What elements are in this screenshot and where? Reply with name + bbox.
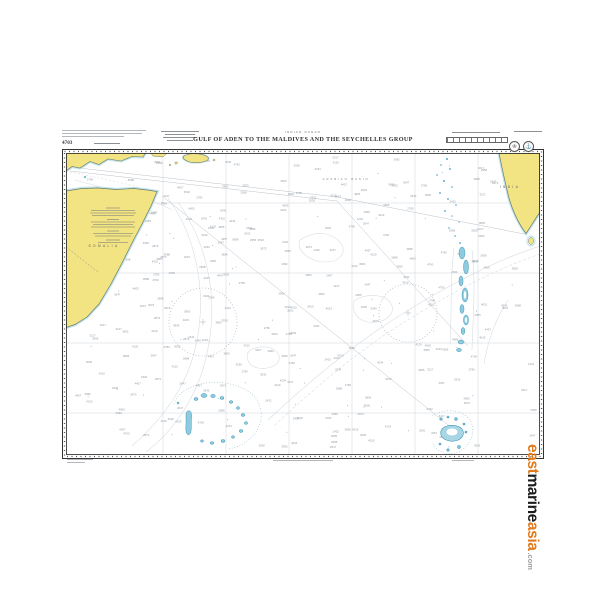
svg-text:2873: 2873 (220, 384, 227, 388)
svg-text:4015: 4015 (183, 318, 190, 322)
atolls-maldives (457, 247, 469, 352)
svg-text:3530: 3530 (419, 429, 426, 433)
corner-microtext (452, 460, 474, 461)
crown-icon: ♔ (509, 141, 520, 152)
svg-text:4457: 4457 (485, 327, 492, 331)
svg-text:4605: 4605 (425, 343, 432, 347)
svg-text:2647: 2647 (290, 353, 297, 357)
print-microtext (273, 460, 333, 461)
svg-text:2958: 2958 (530, 408, 537, 412)
arabian-basin-label: ARABIAN BASIN (300, 177, 392, 181)
svg-text:2958: 2958 (449, 229, 456, 233)
svg-text:2432: 2432 (427, 407, 434, 411)
svg-text:2432: 2432 (333, 430, 340, 434)
publication-microtext (67, 462, 85, 463)
svg-text:4605: 4605 (383, 203, 390, 207)
svg-text:4120: 4120 (186, 217, 193, 221)
svg-text:3688: 3688 (164, 253, 171, 257)
svg-text:4457: 4457 (208, 354, 215, 358)
svg-text:2432: 2432 (225, 306, 232, 310)
svg-text:4310: 4310 (402, 280, 409, 284)
svg-text:3688: 3688 (388, 183, 395, 187)
series-microtext (514, 131, 542, 132)
svg-text:3955: 3955 (345, 427, 352, 431)
series-region-label: INDIAN OCEAN (263, 130, 343, 134)
svg-text:2873: 2873 (242, 184, 249, 188)
svg-text:3217: 3217 (479, 193, 486, 197)
svg-text:3805: 3805 (122, 330, 129, 334)
svg-text:3217: 3217 (287, 380, 294, 384)
svg-text:3092: 3092 (282, 262, 289, 266)
svg-text:3955: 3955 (475, 313, 482, 317)
svg-text:4015: 4015 (368, 439, 375, 443)
svg-text:3340: 3340 (195, 339, 202, 343)
svg-text:2958: 2958 (218, 408, 225, 412)
svg-text:3340: 3340 (410, 194, 417, 198)
svg-text:2873: 2873 (306, 245, 313, 249)
svg-text:2873: 2873 (373, 319, 380, 323)
svg-text:3955: 3955 (423, 348, 430, 352)
svg-text:4605: 4605 (169, 271, 176, 275)
compass-rose-centers (200, 310, 411, 325)
svg-text:3960: 3960 (305, 273, 312, 277)
svg-text:3955: 3955 (92, 337, 99, 341)
svg-text:4015: 4015 (148, 303, 155, 307)
svg-text:4120: 4120 (357, 217, 364, 221)
svg-text:2873: 2873 (143, 433, 150, 437)
svg-text:2647: 2647 (326, 274, 333, 278)
svg-text:2780: 2780 (242, 369, 249, 373)
svg-text:2647: 2647 (529, 433, 536, 437)
svg-text:4234: 4234 (335, 368, 342, 372)
svg-text:4310: 4310 (334, 356, 341, 360)
svg-text:4790: 4790 (123, 431, 130, 435)
atolls-seychelles (174, 382, 261, 449)
svg-text:4457: 4457 (135, 381, 142, 385)
svg-text:2958: 2958 (240, 191, 247, 195)
svg-text:2432: 2432 (324, 358, 331, 362)
svg-text:3955: 3955 (418, 368, 425, 372)
svg-text:3955: 3955 (173, 324, 180, 328)
svg-text:4234: 4234 (280, 378, 287, 382)
svg-text:4120: 4120 (415, 343, 422, 347)
svg-text:2432: 2432 (314, 248, 321, 252)
svg-text:3217: 3217 (427, 367, 434, 371)
svg-text:4605: 4605 (331, 434, 338, 438)
svg-text:3955: 3955 (396, 265, 403, 269)
svg-text:2647: 2647 (403, 181, 410, 185)
svg-text:4015: 4015 (361, 188, 368, 192)
svg-text:3530: 3530 (221, 319, 228, 323)
svg-text:3530: 3530 (184, 190, 191, 194)
svg-text:4234: 4234 (501, 304, 508, 308)
svg-text:4605: 4605 (119, 407, 126, 411)
svg-text:3217: 3217 (116, 327, 123, 331)
svg-text:4015: 4015 (472, 259, 479, 263)
watermark-word-east: east (524, 444, 541, 473)
svg-text:4120: 4120 (151, 329, 158, 333)
svg-text:3092: 3092 (478, 234, 485, 238)
svg-text:4234: 4234 (314, 167, 321, 171)
svg-text:3092: 3092 (287, 308, 294, 312)
svg-text:2958: 2958 (480, 254, 487, 258)
svg-text:3340: 3340 (297, 416, 304, 420)
svg-text:3955: 3955 (281, 354, 288, 358)
svg-text:4790: 4790 (451, 270, 458, 274)
svg-text:2780: 2780 (153, 272, 160, 276)
svg-text:2780: 2780 (164, 345, 171, 349)
svg-text:4234: 4234 (202, 338, 209, 342)
watermark-word-marine: marine (524, 473, 541, 521)
svg-text:4310: 4310 (99, 372, 106, 376)
svg-text:4457: 4457 (177, 185, 184, 189)
land-india (499, 153, 540, 246)
svg-text:2432: 2432 (450, 199, 457, 203)
svg-text:4234: 4234 (436, 347, 443, 351)
svg-text:4234: 4234 (385, 425, 392, 429)
svg-text:4457: 4457 (438, 381, 445, 385)
svg-text:4605: 4605 (484, 265, 491, 269)
anchor-icon: ⚓ (523, 141, 534, 152)
svg-text:4310: 4310 (172, 365, 179, 369)
svg-text:4790: 4790 (152, 278, 159, 282)
svg-text:3092: 3092 (174, 345, 181, 349)
svg-text:4310: 4310 (219, 217, 226, 221)
svg-text:4120: 4120 (132, 345, 139, 349)
svg-text:3092: 3092 (294, 163, 301, 167)
svg-text:3805: 3805 (223, 352, 230, 356)
svg-text:2780: 2780 (345, 383, 352, 387)
svg-text:4457: 4457 (341, 182, 348, 186)
svg-text:2780: 2780 (239, 281, 246, 285)
svg-text:3092: 3092 (474, 444, 481, 448)
svg-text:3805: 3805 (512, 267, 519, 271)
svg-text:4790: 4790 (471, 354, 478, 358)
copyright-microtext-line (62, 130, 146, 131)
chart-title: GULF OF ADEN TO THE MALDIVES AND THE SEY… (178, 136, 428, 143)
svg-text:3530: 3530 (258, 238, 265, 242)
svg-text:4790: 4790 (234, 163, 241, 167)
svg-text:3960: 3960 (184, 309, 191, 313)
svg-text:3805: 3805 (425, 193, 432, 197)
svg-text:4790: 4790 (349, 225, 356, 229)
svg-text:3530: 3530 (307, 304, 314, 308)
svg-text:4015: 4015 (479, 335, 486, 339)
svg-text:2958: 2958 (355, 293, 362, 297)
svg-text:4605: 4605 (132, 286, 139, 290)
svg-text:2432: 2432 (265, 398, 272, 402)
svg-text:3805: 3805 (123, 354, 130, 358)
svg-text:2780: 2780 (289, 361, 296, 365)
latitude-scale-microtext (452, 132, 500, 133)
svg-text:4234: 4234 (280, 208, 287, 212)
land-socotra (169, 154, 215, 166)
nautical-chart-graphic: 4234396028734457334040153688243247903217… (0, 0, 600, 600)
svg-text:4234: 4234 (226, 424, 233, 428)
svg-text:4605: 4605 (360, 433, 367, 437)
svg-text:2958: 2958 (331, 440, 338, 444)
svg-text:2873: 2873 (155, 377, 162, 381)
india-label: INDIA (492, 185, 528, 189)
svg-text:3960: 3960 (161, 201, 168, 205)
svg-text:3217: 3217 (100, 323, 107, 327)
svg-text:4015: 4015 (326, 307, 333, 311)
watermark-word-asia: asia (524, 522, 541, 551)
svg-text:4015: 4015 (352, 427, 359, 431)
svg-text:4790: 4790 (383, 233, 390, 237)
svg-text:2780: 2780 (421, 183, 428, 187)
svg-text:3530: 3530 (349, 346, 356, 350)
svg-text:4015: 4015 (184, 255, 191, 259)
svg-text:4605: 4605 (354, 192, 361, 196)
svg-text:2873: 2873 (260, 247, 267, 251)
svg-text:3805: 3805 (156, 257, 163, 261)
svg-text:3960: 3960 (143, 241, 150, 245)
scale-microtext (94, 143, 120, 144)
svg-text:4310: 4310 (378, 213, 385, 217)
svg-text:3217: 3217 (330, 248, 337, 252)
svg-text:4120: 4120 (333, 161, 340, 165)
svg-text:2958: 2958 (156, 161, 163, 165)
svg-text:3340: 3340 (208, 226, 215, 230)
svg-text:4015: 4015 (175, 419, 182, 423)
svg-text:2647: 2647 (218, 240, 225, 244)
svg-text:3805: 3805 (365, 396, 372, 400)
svg-text:3805: 3805 (479, 221, 486, 225)
svg-text:3955: 3955 (471, 228, 478, 232)
svg-text:4310: 4310 (244, 343, 251, 347)
svg-text:4120: 4120 (330, 194, 337, 198)
svg-text:3530: 3530 (454, 378, 461, 382)
eastmarineasia-watermark: eastmarineasia.com (525, 444, 541, 570)
svg-text:3688: 3688 (221, 252, 228, 256)
svg-text:2780: 2780 (407, 206, 414, 210)
svg-text:3340: 3340 (370, 306, 377, 310)
somalia-label: SOMALIA (82, 244, 126, 248)
edition-microtext-line (161, 131, 199, 132)
svg-text:3340: 3340 (112, 386, 119, 390)
svg-text:4015: 4015 (481, 303, 488, 307)
svg-text:3092: 3092 (168, 417, 175, 421)
svg-text:3530: 3530 (280, 179, 287, 183)
svg-text:4457: 4457 (75, 393, 82, 397)
svg-text:4234: 4234 (377, 361, 384, 365)
svg-text:3960: 3960 (222, 185, 229, 189)
svg-text:3340: 3340 (220, 208, 227, 212)
chart-number: 4703 (62, 140, 72, 146)
svg-text:2647: 2647 (151, 354, 158, 358)
svg-text:3217: 3217 (439, 414, 446, 418)
svg-text:4120: 4120 (160, 419, 167, 423)
svg-text:4457: 4457 (365, 249, 372, 253)
svg-text:4015: 4015 (385, 377, 392, 381)
svg-text:3688: 3688 (515, 303, 522, 307)
svg-text:3688: 3688 (473, 177, 480, 181)
svg-text:2958: 2958 (364, 210, 371, 214)
svg-text:4120: 4120 (528, 362, 535, 366)
svg-text:2873: 2873 (464, 401, 471, 405)
svg-text:4015: 4015 (204, 276, 211, 280)
svg-text:2647: 2647 (364, 282, 371, 286)
map-interior: 4234396028734457334040153688243247903217… (66, 152, 540, 455)
svg-text:4457: 4457 (255, 348, 262, 352)
svg-text:2432: 2432 (244, 231, 251, 235)
svg-text:3092: 3092 (345, 198, 352, 202)
svg-text:2873: 2873 (130, 392, 137, 396)
svg-text:4605: 4605 (218, 225, 225, 229)
svg-text:2958: 2958 (481, 168, 488, 172)
svg-text:3340: 3340 (325, 226, 332, 230)
svg-text:2780: 2780 (87, 178, 94, 182)
svg-text:3688: 3688 (183, 356, 190, 360)
svg-text:4457: 4457 (431, 431, 438, 435)
svg-text:3340: 3340 (225, 160, 232, 164)
svg-text:3955: 3955 (285, 249, 292, 253)
svg-text:2780: 2780 (264, 326, 271, 330)
svg-text:4120: 4120 (370, 252, 377, 256)
svg-text:3955: 3955 (281, 444, 288, 448)
svg-text:3092: 3092 (393, 157, 400, 161)
copyright-microtext-line (62, 133, 142, 134)
svg-text:3092: 3092 (259, 443, 266, 447)
svg-text:3955: 3955 (250, 238, 257, 242)
svg-text:3217: 3217 (477, 227, 484, 231)
graphic-scale-bar (446, 137, 508, 143)
svg-text:4120: 4120 (296, 191, 303, 195)
svg-text:4015: 4015 (164, 306, 171, 310)
product-image-canvas: 4234396028734457334040153688243247903217… (0, 0, 600, 600)
land-arabia (66, 152, 168, 178)
svg-text:3340: 3340 (203, 388, 210, 392)
svg-text:3955: 3955 (84, 392, 91, 396)
svg-text:2647: 2647 (140, 304, 147, 308)
svg-text:2432: 2432 (201, 217, 208, 221)
svg-text:3217: 3217 (333, 284, 340, 288)
svg-text:4120: 4120 (351, 264, 358, 268)
svg-text:4234: 4234 (229, 219, 236, 223)
svg-text:4605: 4605 (361, 305, 368, 309)
svg-text:2873: 2873 (154, 316, 161, 320)
svg-text:3688: 3688 (232, 238, 239, 242)
svg-text:4310: 4310 (428, 302, 435, 306)
svg-text:4234: 4234 (403, 275, 410, 279)
publication-microtext (67, 459, 93, 460)
svg-text:3688: 3688 (157, 296, 164, 300)
crown-glyph: ♔ (512, 144, 517, 150)
svg-text:3340: 3340 (203, 294, 210, 298)
svg-text:3530: 3530 (309, 199, 316, 203)
anchor-glyph: ⚓ (525, 144, 532, 150)
svg-text:4234: 4234 (291, 441, 298, 445)
svg-text:2647: 2647 (114, 293, 121, 297)
svg-text:3688: 3688 (391, 256, 398, 260)
svg-text:3688: 3688 (406, 247, 413, 251)
svg-text:3530: 3530 (223, 272, 230, 276)
svg-text:2780: 2780 (468, 367, 475, 371)
svg-text:3960: 3960 (278, 291, 285, 295)
svg-text:3688: 3688 (452, 337, 459, 341)
svg-text:4790: 4790 (441, 251, 448, 255)
svg-text:2958: 2958 (331, 412, 338, 416)
svg-text:3530: 3530 (260, 373, 267, 377)
svg-text:4790: 4790 (313, 324, 320, 328)
svg-text:4790: 4790 (325, 416, 332, 420)
svg-text:3960: 3960 (318, 292, 325, 296)
svg-text:2873: 2873 (152, 244, 159, 248)
svg-text:2958: 2958 (128, 178, 135, 182)
svg-text:4120: 4120 (282, 240, 289, 244)
svg-text:3217: 3217 (163, 194, 170, 198)
svg-text:4310: 4310 (86, 400, 93, 404)
svg-text:4605: 4605 (409, 256, 416, 260)
svg-text:3340: 3340 (201, 233, 208, 237)
svg-text:4790: 4790 (438, 286, 445, 290)
svg-text:2647: 2647 (330, 445, 337, 449)
svg-text:3530: 3530 (271, 332, 278, 336)
svg-text:4605: 4605 (188, 207, 195, 211)
svg-text:3960: 3960 (268, 349, 275, 353)
svg-text:3217: 3217 (521, 388, 528, 392)
watermark-suffix-com: .com (526, 552, 535, 570)
svg-text:3955: 3955 (442, 348, 449, 352)
svg-text:2432: 2432 (246, 226, 253, 230)
svg-text:3960: 3960 (359, 262, 366, 266)
svg-text:3530: 3530 (86, 360, 93, 364)
svg-text:3805: 3805 (364, 404, 371, 408)
svg-text:4234: 4234 (198, 421, 205, 425)
svg-text:3340: 3340 (204, 245, 211, 249)
svg-text:2958: 2958 (199, 265, 206, 269)
svg-text:3688: 3688 (143, 277, 150, 281)
svg-text:3960: 3960 (288, 192, 295, 196)
svg-text:2780: 2780 (196, 195, 203, 199)
svg-text:2873: 2873 (358, 412, 365, 416)
svg-text:3960: 3960 (210, 259, 217, 263)
svg-text:4790: 4790 (427, 263, 434, 267)
svg-text:4120: 4120 (274, 383, 281, 387)
svg-text:2647: 2647 (490, 180, 497, 184)
copyright-microtext-line (62, 136, 124, 137)
svg-text:3688: 3688 (336, 386, 343, 390)
svg-text:3340: 3340 (141, 375, 148, 379)
svg-text:3530: 3530 (236, 363, 243, 367)
svg-text:2647: 2647 (179, 382, 186, 386)
svg-text:2647: 2647 (177, 406, 184, 410)
svg-text:3092: 3092 (290, 331, 297, 335)
svg-text:3217: 3217 (332, 155, 339, 159)
svg-text:4457: 4457 (150, 211, 157, 215)
svg-text:2647: 2647 (363, 221, 370, 225)
svg-text:3092: 3092 (116, 411, 123, 415)
